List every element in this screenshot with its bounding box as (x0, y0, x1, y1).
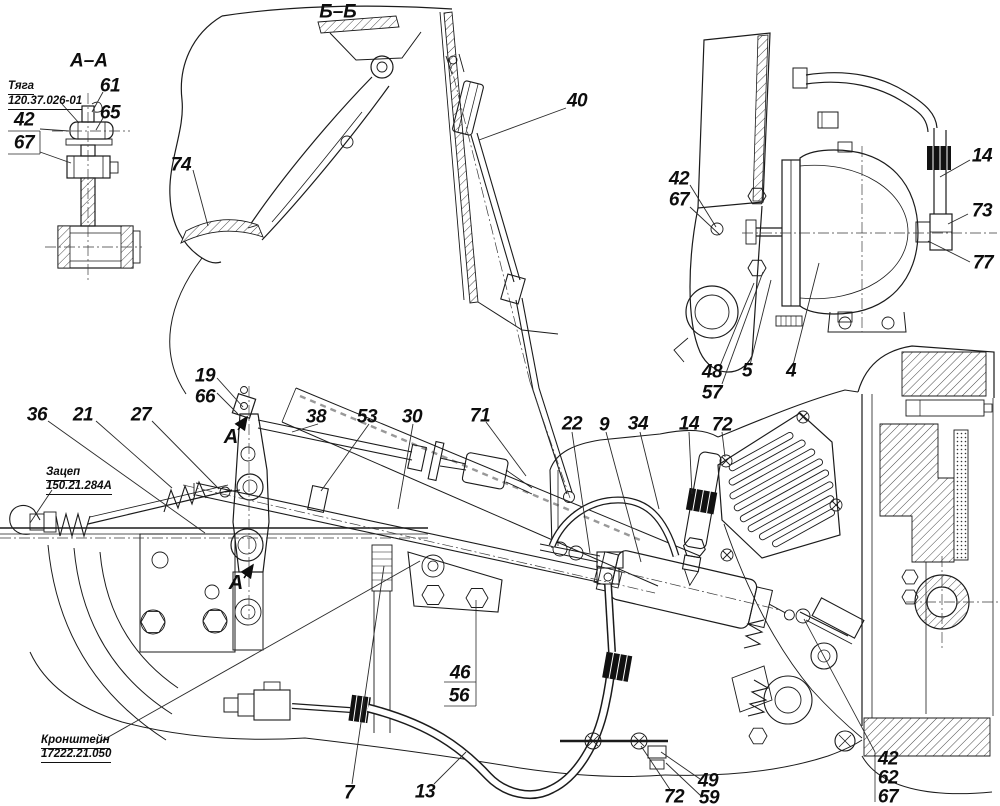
callout-72-cover: 72 (712, 416, 732, 435)
view-arrow-letter-a2: А (229, 573, 243, 593)
main-side-view-frame (0, 528, 862, 776)
part-label-tyaga-name: Тяга (8, 80, 34, 95)
callout-4: 4 (786, 362, 796, 381)
callout-19: 19 (195, 367, 215, 386)
callout-61: 61 (100, 77, 120, 96)
callout-46: 46 (450, 664, 470, 683)
pedal-rod-40 (446, 54, 575, 503)
callout-36: 36 (27, 406, 47, 425)
callout-38: 38 (306, 408, 326, 427)
section-title-aa: А–А (70, 52, 108, 71)
callout-73: 73 (972, 202, 992, 221)
view-arrow-letter-a1: А (224, 427, 238, 447)
callout-67-aa: 67 (14, 134, 34, 153)
part-label-zacep-number: 150.21.284А (46, 480, 112, 495)
callout-67-booster: 67 (669, 191, 689, 210)
callout-42-bottom: 42 (878, 750, 898, 769)
callout-14-booster: 14 (972, 147, 992, 166)
callout-13: 13 (415, 783, 435, 802)
callout-40: 40 (567, 92, 587, 111)
callout-57: 57 (702, 384, 722, 403)
callout-21: 21 (73, 406, 93, 425)
callout-72-bottom: 72 (664, 788, 684, 806)
drawing-linework (0, 0, 1000, 806)
callout-77: 77 (973, 254, 993, 273)
callout-42-booster: 42 (669, 170, 689, 189)
part-label-tyaga-number: 120.37.026-01 (8, 95, 82, 110)
callout-48: 48 (702, 363, 722, 382)
callout-56: 56 (449, 687, 469, 706)
pneumatic-chamber-assembly-view (674, 33, 952, 372)
mounting-bracket-7 (372, 545, 502, 733)
technical-drawing-canvas: А–А Б–Б Тяга 120.37.026-01 Зацеп 150.21.… (0, 0, 1000, 806)
part-label-kronshtein-number: 17222.21.050 (41, 748, 111, 763)
centerlines (0, 58, 1000, 648)
section-aa-tie-rod-view (58, 102, 140, 268)
section-bb-pedal-view (170, 6, 558, 394)
leader-lines (8, 92, 970, 802)
callout-42-aa: 42 (14, 111, 34, 130)
callout-59: 59 (699, 789, 719, 806)
callout-30: 30 (402, 408, 422, 427)
callout-74: 74 (171, 156, 191, 175)
hydraulic-hoses (224, 450, 724, 794)
part-label-zacep-name: Зацеп (46, 466, 80, 481)
callout-5: 5 (742, 362, 752, 381)
part-label-kronshtein-name: Кронштейн (41, 734, 110, 749)
callout-34: 34 (628, 415, 648, 434)
callout-9: 9 (599, 416, 609, 435)
callout-71: 71 (470, 407, 490, 426)
callout-53: 53 (357, 408, 377, 427)
clutch-housing-section (858, 346, 994, 794)
callout-22: 22 (562, 415, 582, 434)
callout-14-hose: 14 (679, 415, 699, 434)
callout-66: 66 (195, 388, 215, 407)
callout-65: 65 (100, 104, 120, 123)
section-title-bb: Б–Б (319, 3, 356, 22)
ribbed-cover (715, 411, 848, 561)
callout-7: 7 (344, 784, 354, 803)
callout-62: 62 (878, 769, 898, 788)
callout-67-bottom: 67 (878, 788, 898, 806)
callout-27: 27 (131, 406, 151, 425)
release-linkage-cluster (732, 598, 864, 751)
